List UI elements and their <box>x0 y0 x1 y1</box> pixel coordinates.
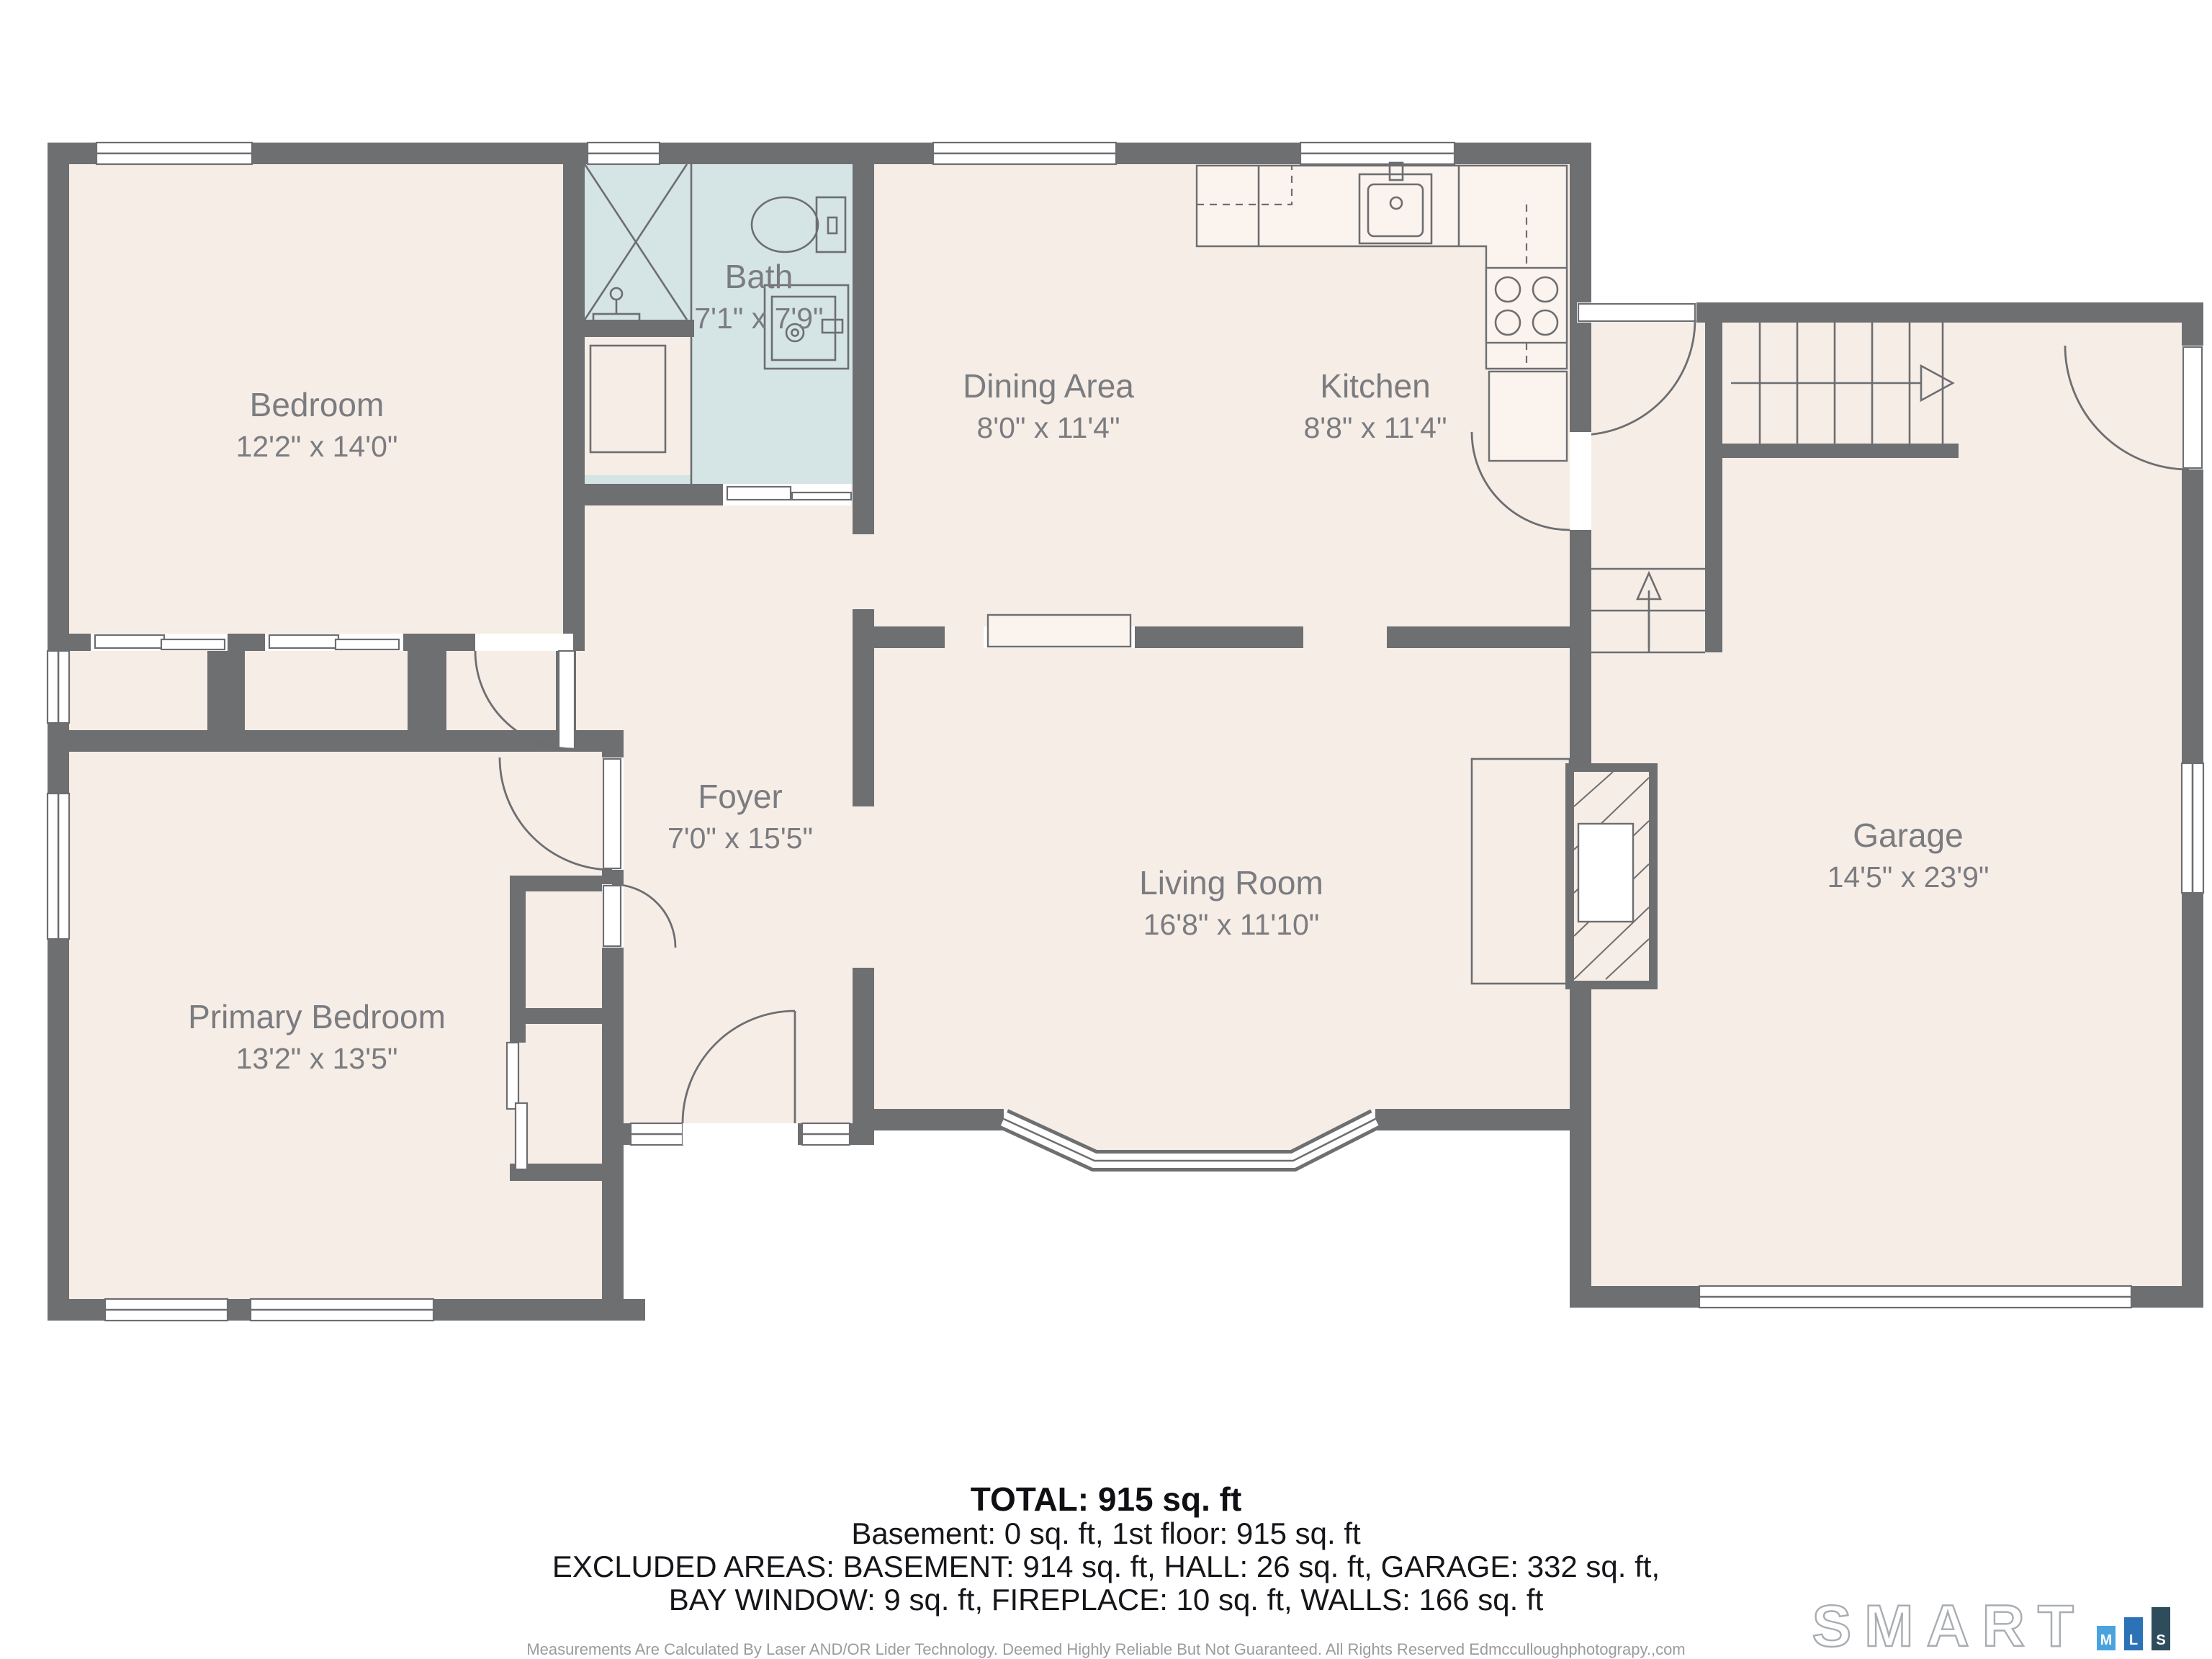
room-label-primary: Primary Bedroom <box>188 998 446 1035</box>
window <box>802 1123 850 1145</box>
room-dims-dining: 8'0" x 11'4" <box>976 411 1120 444</box>
room-dims-bedroom: 12'2" x 14'0" <box>236 430 398 463</box>
window <box>105 1299 228 1321</box>
room-dims-foyer: 7'0" x 15'5" <box>667 822 813 855</box>
room-garage-floor <box>1591 323 2182 1286</box>
room-label-kitchen: Kitchen <box>1320 367 1430 405</box>
firebox <box>1578 824 1633 922</box>
smartmls-logo: SMART M L S <box>1812 1593 2170 1659</box>
room-label-garage: Garage <box>1853 817 1963 854</box>
logo-letter-l: L <box>2129 1632 2138 1648</box>
dining-pass-through <box>984 615 1135 648</box>
closet-sliding-door <box>265 634 403 651</box>
window <box>588 143 660 164</box>
window <box>631 1123 683 1145</box>
room-dims-primary: 13'2" x 13'5" <box>236 1042 398 1075</box>
floor-plan-canvas: Bedroom 12'2" x 14'0" Bath 7'1" x 7'9" D… <box>0 0 2212 1659</box>
window <box>48 793 69 939</box>
summary-total: TOTAL: 915 sq. ft <box>971 1480 1242 1518</box>
refrigerator <box>1489 372 1567 461</box>
garage-door <box>1699 1286 2131 1308</box>
disclaimer-text: Measurements Are Calculated By Laser AND… <box>526 1640 1685 1658</box>
logo-letter-s: S <box>2156 1632 2165 1648</box>
room-dims-living: 16'8" x 11'10" <box>1143 908 1320 941</box>
room-dims-bath: 7'1" x 7'9" <box>694 302 823 335</box>
summary-excluded-1: EXCLUDED AREAS: BASEMENT: 914 sq. ft, HA… <box>552 1550 1660 1583</box>
logo-letter-m: M <box>2100 1632 2113 1648</box>
summary-excluded-2: BAY WINDOW: 9 sq. ft, FIREPLACE: 10 sq. … <box>669 1583 1544 1617</box>
window <box>96 143 252 164</box>
room-label-bath: Bath <box>725 258 793 295</box>
stove <box>1486 268 1567 343</box>
closet-sliding-door <box>91 634 228 651</box>
logo-wordmark: SMART <box>1812 1593 2087 1659</box>
window <box>1300 143 1455 164</box>
linen-closet-floor <box>585 337 691 475</box>
room-label-foyer: Foyer <box>698 778 783 815</box>
room-dims-garage: 14'5" x 23'9" <box>1827 860 1990 894</box>
room-label-bedroom: Bedroom <box>250 386 385 423</box>
summary-block: TOTAL: 915 sq. ft Basement: 0 sq. ft, 1s… <box>526 1480 1685 1658</box>
window <box>48 651 69 723</box>
window <box>2182 763 2203 893</box>
window <box>251 1299 433 1321</box>
summary-floors: Basement: 0 sq. ft, 1st floor: 915 sq. f… <box>851 1516 1361 1550</box>
room-label-dining: Dining Area <box>963 367 1134 405</box>
room-label-living: Living Room <box>1139 864 1323 902</box>
floor-plan-page: Bedroom 12'2" x 14'0" Bath 7'1" x 7'9" D… <box>0 0 2212 1659</box>
bath-sliding-door <box>723 484 851 505</box>
window <box>933 143 1116 164</box>
room-dims-kitchen: 8'8" x 11'4" <box>1303 411 1447 444</box>
